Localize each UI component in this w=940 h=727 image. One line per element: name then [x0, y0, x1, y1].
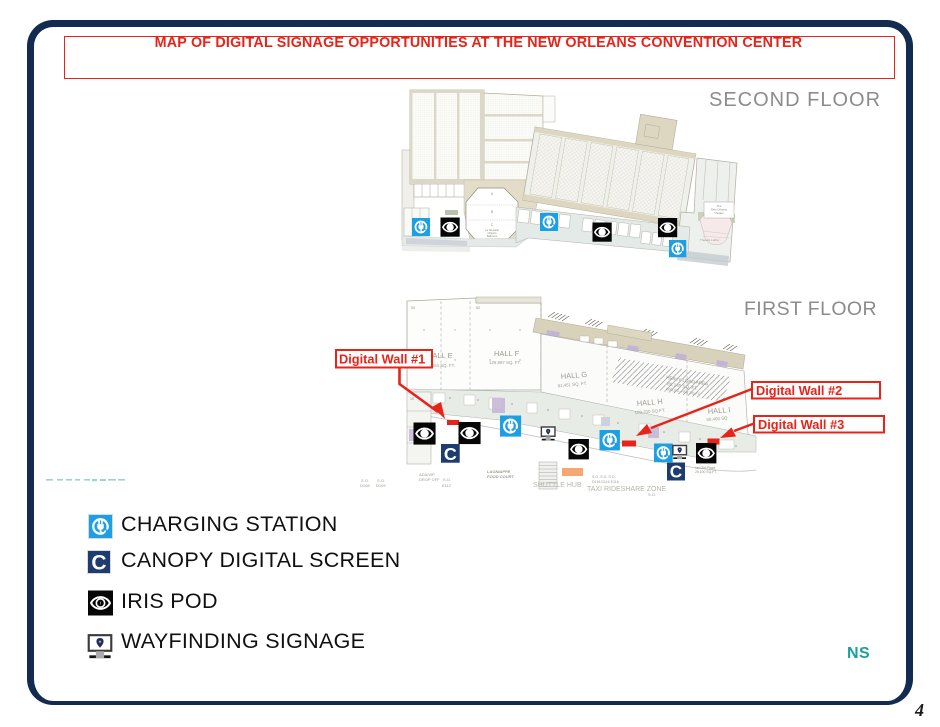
svg-text:Digital Wall #2: Digital Wall #2 — [756, 383, 842, 398]
svg-text:SHUTTLE HUB: SHUTTLE HUB — [533, 482, 582, 489]
svg-text:E112: E112 — [442, 483, 452, 488]
svg-text:DROP OFF: DROP OFF — [419, 477, 440, 482]
svg-text:25,100 SQ.FT.: 25,100 SQ.FT. — [695, 470, 717, 474]
svg-text:D116 D116 E116: D116 D116 E116 — [592, 480, 619, 484]
svg-text:52: 52 — [476, 306, 480, 310]
svg-text:D108: D108 — [360, 483, 370, 488]
svg-text:126,887 SQ. FT.: 126,887 SQ. FT. — [489, 360, 521, 365]
svg-text:53: 53 — [411, 306, 415, 310]
svg-text:S.O. S.O. S.O.: S.O. S.O. S.O. — [592, 475, 616, 479]
svg-text:Theatre Lobby: Theatre Lobby — [700, 238, 720, 242]
svg-text:Theater: Theater — [714, 211, 724, 215]
svg-text:D109: D109 — [376, 483, 386, 488]
svg-text:Digital Wall #1: Digital Wall #1 — [339, 352, 425, 367]
svg-text:C: C — [91, 552, 106, 574]
svg-text:10: 10 — [410, 397, 414, 401]
svg-text:HALL F: HALL F — [494, 349, 520, 358]
svg-text:Digital Wall #3: Digital Wall #3 — [758, 417, 844, 432]
svg-text:S.O.: S.O. — [443, 477, 451, 482]
svg-text:Ballroom: Ballroom — [487, 234, 497, 238]
svg-text:i: i — [100, 601, 101, 606]
svg-text:FOOD COURT: FOOD COURT — [487, 474, 514, 479]
svg-text:S.O.: S.O. — [648, 492, 656, 497]
